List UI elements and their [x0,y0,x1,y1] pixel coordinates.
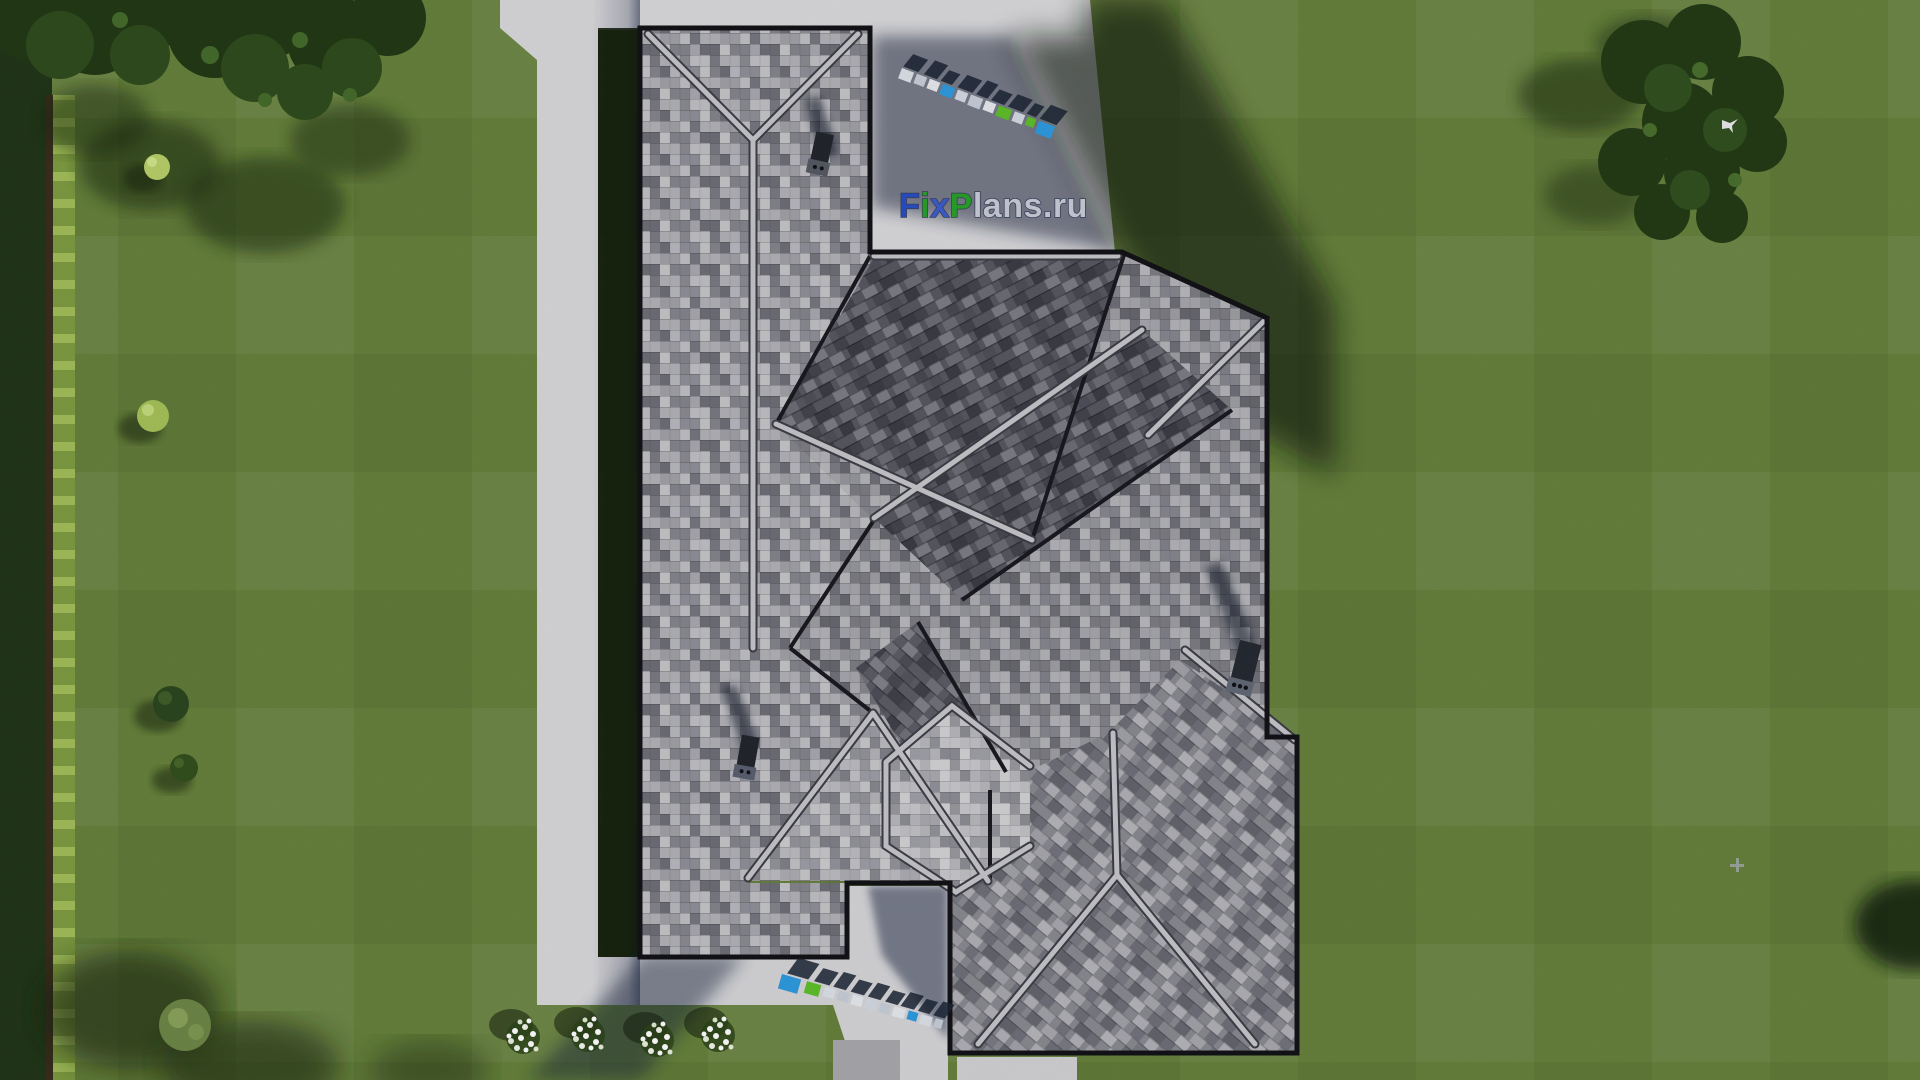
film-grain-overlay [0,0,1920,1080]
scene-canvas: FixPlans.ru [0,0,1920,1080]
aerial-render-root: FixPlans.ru [0,0,1920,1080]
